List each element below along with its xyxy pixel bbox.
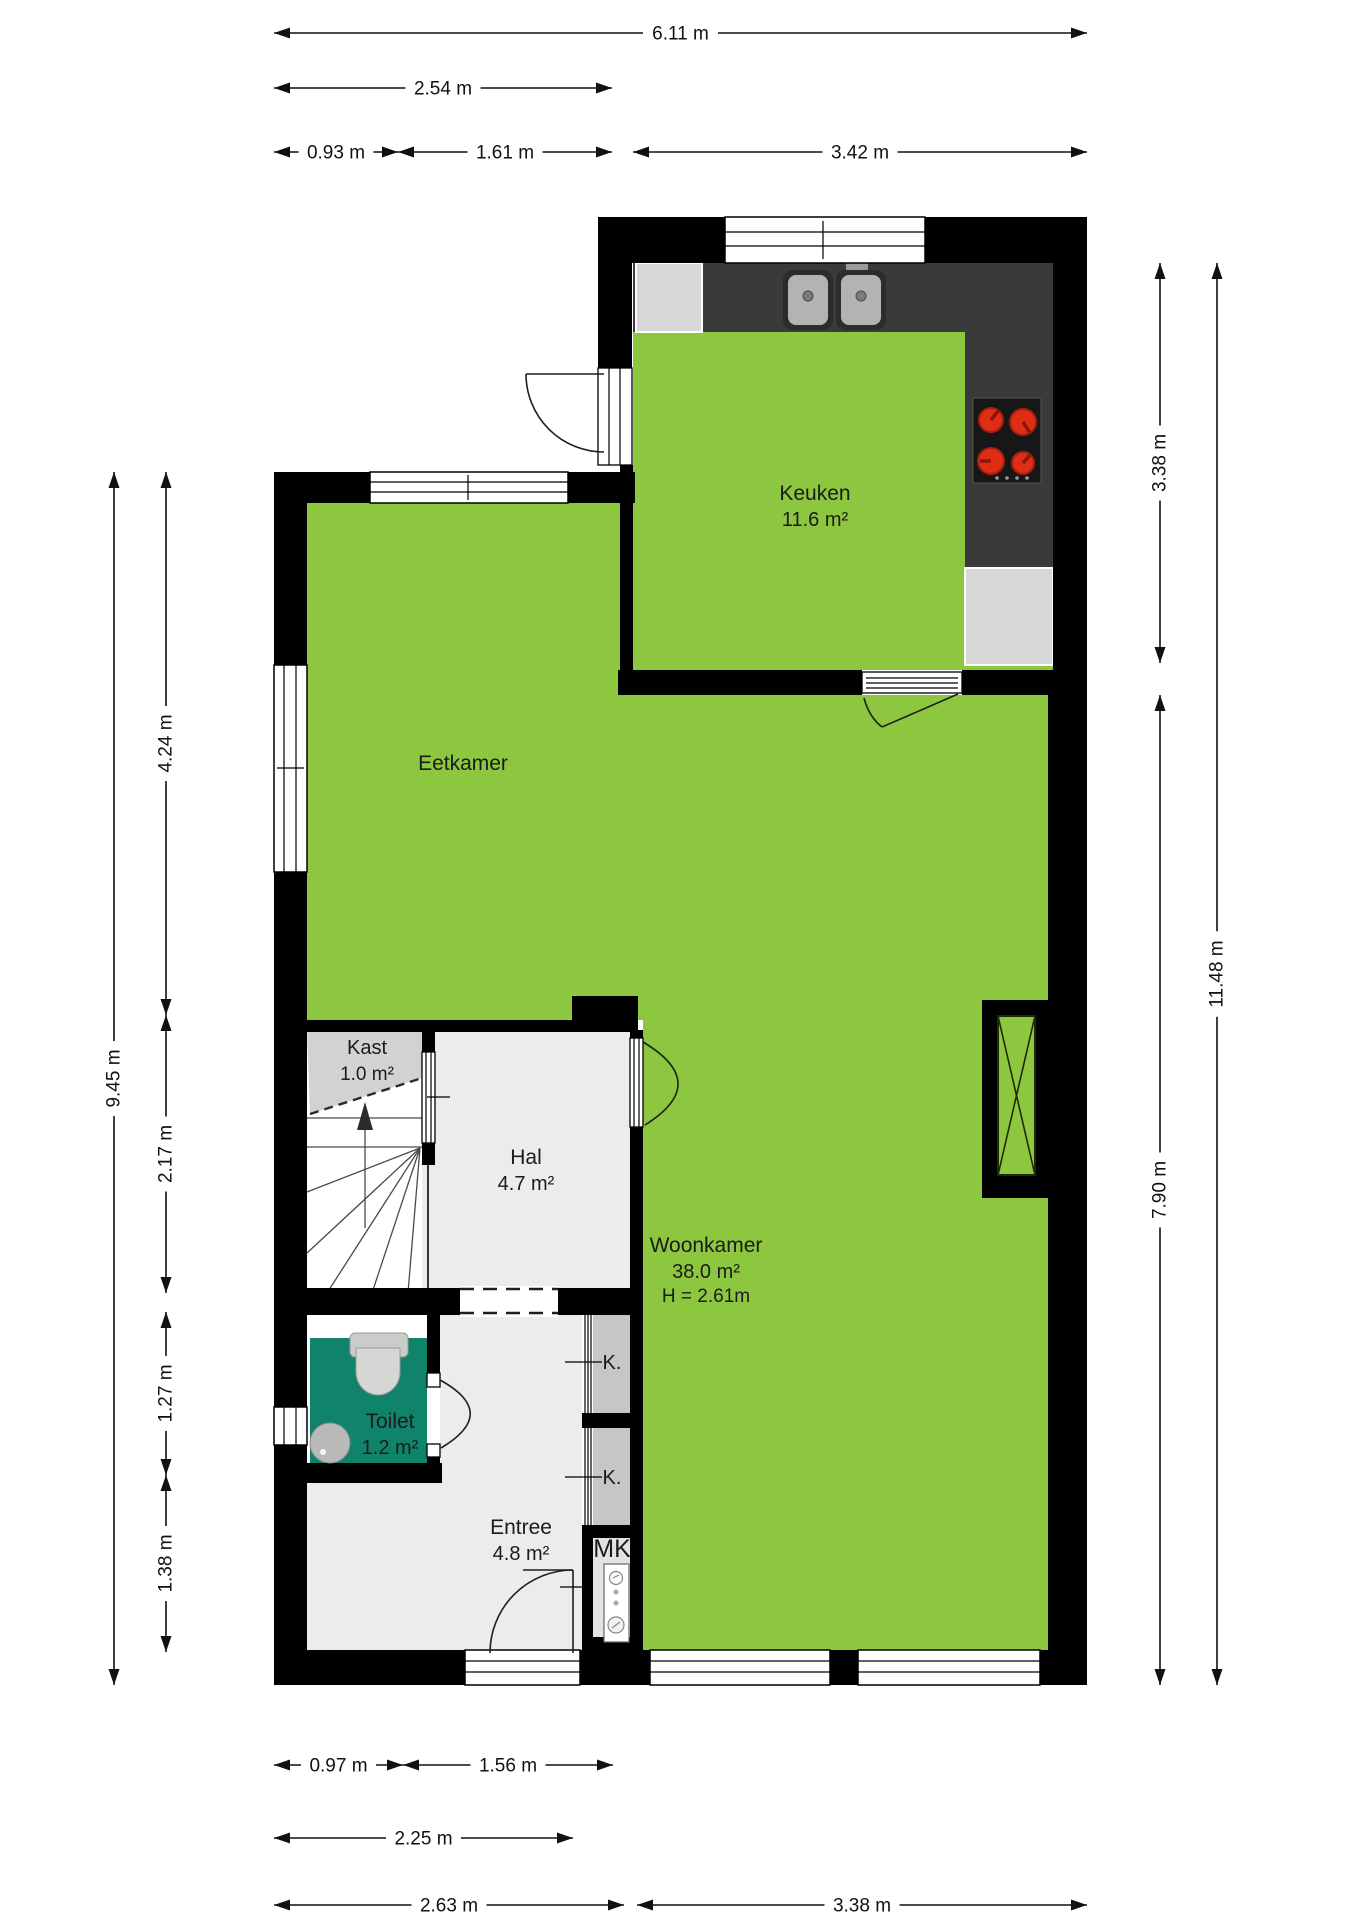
dim-label: 11.48 m (1207, 940, 1228, 1007)
dim-label: 0.93 m (307, 143, 365, 164)
dimension-1.27m: 1.27 m (153, 1312, 179, 1475)
washbasin-icon (310, 1423, 350, 1463)
dim-label: 2.17 m (156, 1125, 177, 1183)
dimension-9.45m: 9.45 m (101, 472, 127, 1685)
floorplan-page: Keuken11.6 m²EetkamerKast1.0 m²Hal4.7 m²… (0, 0, 1358, 1920)
floors (307, 263, 1053, 1650)
dimension-1.56m: 1.56 m (403, 1752, 613, 1778)
dimension-2.63m: 2.63 m (274, 1892, 624, 1918)
woonkamer-bottom-window-right (858, 1650, 1040, 1685)
floorplan-drawing: Keuken11.6 m²EetkamerKast1.0 m²Hal4.7 m²… (0, 0, 1358, 1920)
dim-label: 1.56 m (479, 1756, 537, 1777)
keuken-window (725, 217, 925, 263)
appliance-bottom-right (965, 568, 1053, 665)
label-closet: K. (603, 1352, 622, 1374)
entree-floor-upper (440, 1315, 582, 1483)
dim-label: 2.63 m (420, 1896, 478, 1917)
dimension-4.24m: 4.24 m (153, 472, 179, 1015)
dim-label: 6.11 m (652, 24, 709, 45)
dim-label: 1.61 m (476, 143, 534, 164)
dimension-3.38m: 3.38 m (637, 1892, 1087, 1918)
room-label-eetkamer: Eetkamer (418, 752, 508, 775)
dim-label: 3.38 m (1150, 434, 1171, 492)
hal-entree-opening (460, 1286, 558, 1317)
entree-floor-lower (307, 1483, 582, 1650)
dim-label: 9.45 m (104, 1049, 125, 1107)
dim-label: 7.90 m (1150, 1161, 1171, 1219)
dim-label: 0.97 m (309, 1756, 367, 1777)
room-label-keuken: Keuken (779, 482, 850, 505)
eetkamer-top-window (370, 472, 568, 503)
dim-label: 3.38 m (833, 1896, 891, 1917)
dim-label: 3.42 m (831, 143, 889, 164)
dimension-0.93m: 0.93 m (274, 139, 398, 165)
woonkamer-bottom-window-left (650, 1650, 830, 1685)
dimension-1.61m: 1.61 m (398, 139, 612, 165)
eetkamer-left-window (274, 665, 307, 872)
appliance-top-left (636, 263, 702, 332)
dimension-7.90m: 7.90 m (1147, 695, 1173, 1685)
toilet-window (274, 1407, 307, 1445)
dimension-2.17m: 2.17 m (153, 1015, 179, 1293)
dimension-2.54m: 2.54 m (274, 75, 612, 101)
room-area-hal: 4.7 m² (498, 1173, 555, 1195)
dimension-11.48m: 11.48 m (1204, 263, 1230, 1685)
dimension-0.97m: 0.97 m (274, 1752, 403, 1778)
room-height-woonkamer: H = 2.61m (662, 1286, 750, 1307)
dim-label: 1.38 m (156, 1534, 177, 1592)
dimension-2.25m: 2.25 m (274, 1825, 573, 1851)
dim-label: 4.24 m (156, 714, 177, 772)
room-area-kast: 1.0 m² (340, 1064, 394, 1085)
room-area-keuken: 11.6 m² (782, 509, 849, 531)
label-meterkast: MK (593, 1535, 631, 1563)
dimension-3.38m: 3.38 m (1147, 263, 1173, 663)
open-area-floor (620, 695, 1048, 1020)
dimension-1.38m: 1.38 m (153, 1475, 179, 1652)
dim-label: 2.25 m (394, 1829, 452, 1850)
room-label-entree: Entree (490, 1516, 552, 1539)
room-area-entree: 4.8 m² (493, 1543, 550, 1565)
meter-cabinet-panel (604, 1564, 629, 1642)
room-label-kast: Kast (347, 1037, 387, 1059)
dim-label: 1.27 m (156, 1364, 177, 1422)
room-label-toilet: Toilet (365, 1410, 414, 1433)
dim-label: 2.54 m (414, 79, 472, 100)
room-label-hal: Hal (510, 1146, 542, 1169)
label-closet: K. (603, 1467, 622, 1489)
room-label-woonkamer: Woonkamer (650, 1234, 763, 1257)
dimension-6.11m: 6.11 m (274, 20, 1087, 46)
dimension-3.42m: 3.42 m (633, 139, 1087, 165)
stove-icon (973, 398, 1041, 483)
room-area-toilet: 1.2 m² (362, 1437, 419, 1459)
room-area-woonkamer: 38.0 m² (672, 1261, 740, 1283)
keuken-backdoor (526, 368, 632, 465)
